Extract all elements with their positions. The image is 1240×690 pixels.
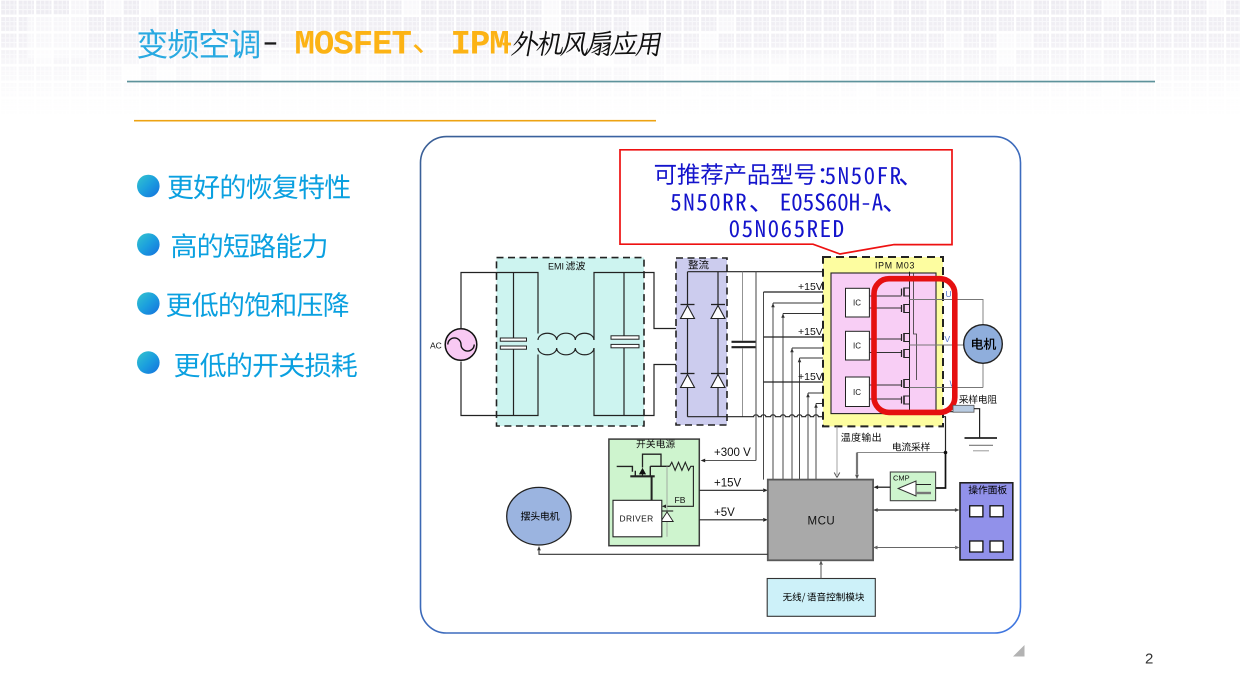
svg-text:+5V: +5V xyxy=(714,507,735,519)
svg-text:DRIVER: DRIVER xyxy=(620,514,654,524)
svg-text:IC: IC xyxy=(853,388,861,397)
svg-text:U: U xyxy=(946,289,952,299)
svg-text:+300 V: +300 V xyxy=(714,447,751,459)
svg-text:MOSFET: MOSFET xyxy=(295,26,412,64)
svg-text:IC: IC xyxy=(853,342,861,351)
svg-text:+15V: +15V xyxy=(798,326,823,338)
svg-text:+15V: +15V xyxy=(798,281,823,293)
svg-text:+15V: +15V xyxy=(798,371,823,383)
svg-text:IC: IC xyxy=(853,299,861,308)
svg-text:+15V: +15V xyxy=(714,478,742,490)
svg-text:IPM: IPM xyxy=(451,26,509,64)
svg-text:FB: FB xyxy=(675,495,686,505)
svg-text:EMI: EMI xyxy=(548,262,564,272)
svg-text:CMP: CMP xyxy=(893,474,910,483)
svg-text:AC: AC xyxy=(430,341,442,351)
svg-text:MCU: MCU xyxy=(808,516,836,528)
svg-text:2: 2 xyxy=(1145,651,1153,668)
svg-text:V: V xyxy=(945,334,951,344)
svg-text:IPM M03: IPM M03 xyxy=(875,261,915,271)
